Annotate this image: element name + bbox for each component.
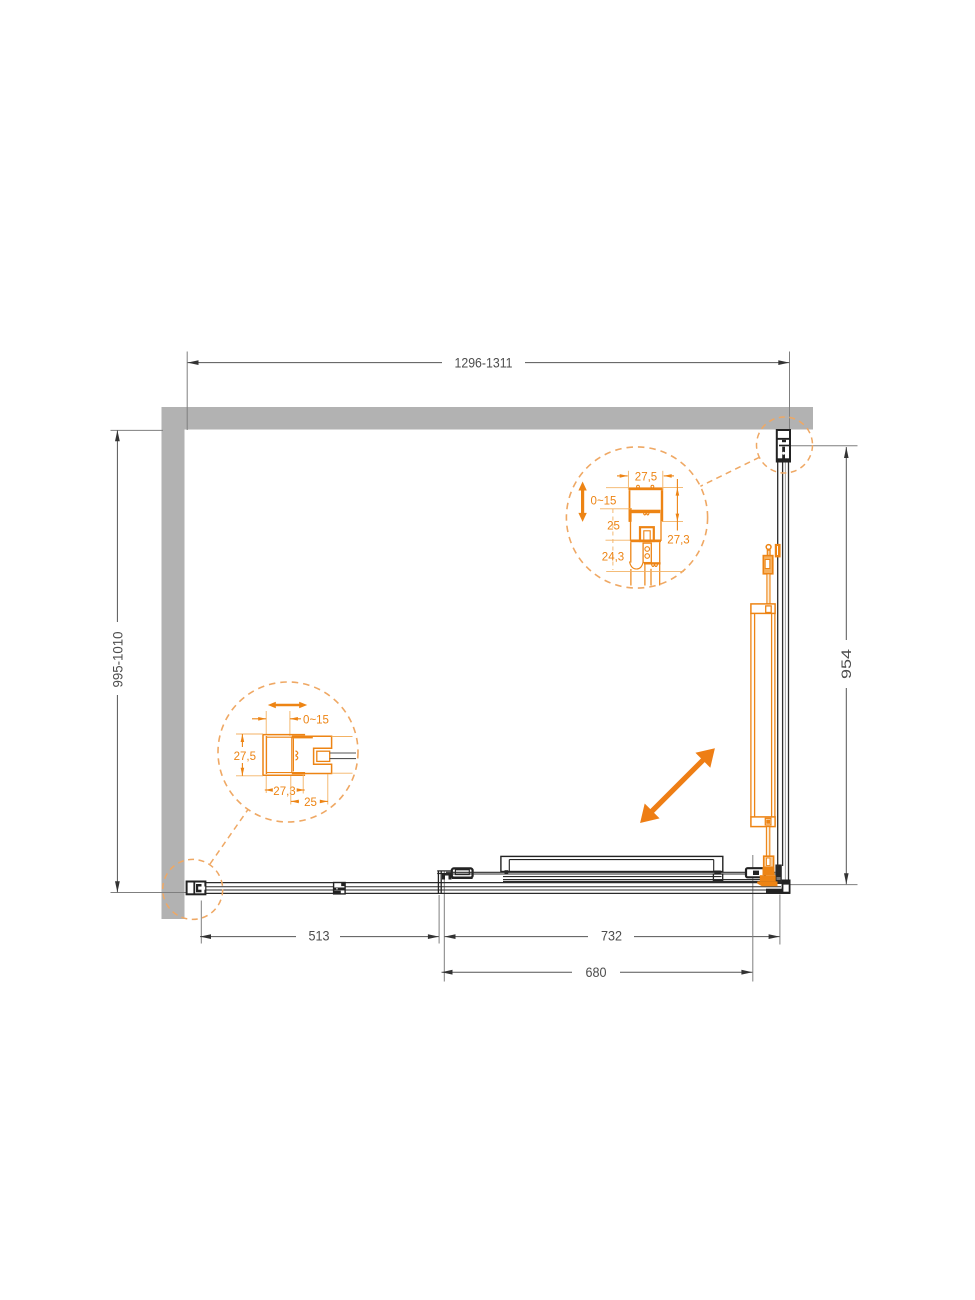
svg-text:27,3: 27,3 [667,535,689,547]
svg-text:25: 25 [607,521,620,533]
svg-text:27,5: 27,5 [234,751,256,763]
svg-text:732: 732 [601,928,622,944]
svg-text:680: 680 [586,964,607,980]
svg-text:995-1010: 995-1010 [109,631,125,687]
svg-text:1296-1311: 1296-1311 [455,355,513,371]
svg-text:24,3: 24,3 [602,552,624,564]
svg-text:954: 954 [838,649,854,679]
svg-text:25: 25 [304,797,317,809]
svg-text:0~15: 0~15 [303,714,329,726]
svg-text:27,5: 27,5 [635,472,657,484]
svg-text:0~15: 0~15 [591,496,617,508]
svg-text:27,3: 27,3 [273,786,295,798]
svg-text:513: 513 [309,928,330,944]
